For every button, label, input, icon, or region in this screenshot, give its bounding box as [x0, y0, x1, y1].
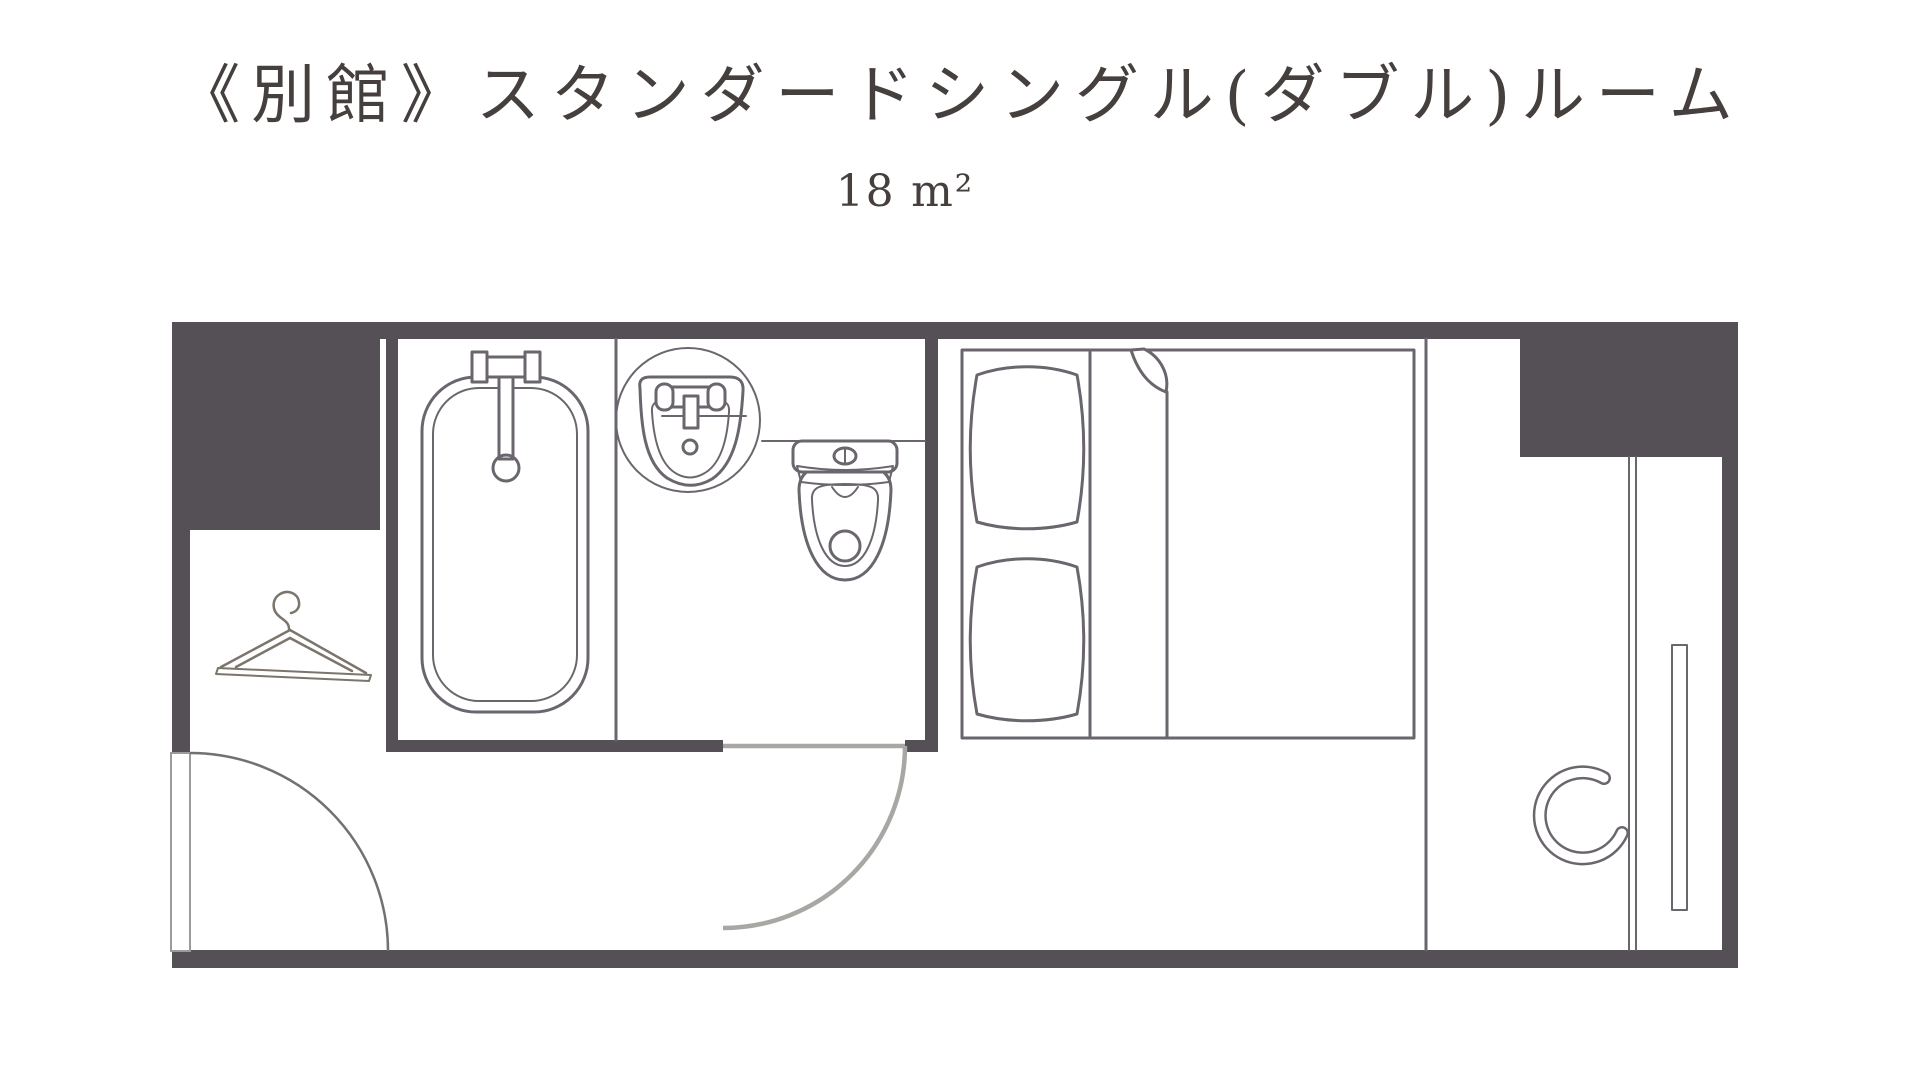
wall-top	[172, 322, 1738, 339]
hanger-icon	[216, 592, 371, 681]
bathroom-wall-left	[386, 339, 398, 751]
entrance-door-icon	[171, 753, 388, 951]
entrance-door-swing-arc	[190, 753, 388, 951]
bed-icon	[962, 349, 1414, 738]
bathtub-icon	[422, 352, 588, 712]
walls	[172, 322, 1738, 968]
closet-door-handle	[1672, 645, 1687, 910]
wall-bottom	[172, 950, 1738, 968]
pillow	[970, 367, 1084, 529]
wall-right	[1722, 457, 1738, 950]
sink-icon	[616, 348, 760, 492]
toilet-icon	[793, 441, 897, 580]
wall-block-top-right	[1520, 322, 1738, 457]
bathroom-door-icon	[723, 746, 905, 928]
bathroom-wall-right-foot	[905, 740, 938, 752]
bathroom-wall-right	[925, 339, 938, 740]
bathroom-door-swing-arc	[723, 746, 905, 928]
round-stool-icon	[1540, 772, 1622, 858]
floorplan-drawing	[0, 0, 1920, 1080]
entrance-door-leaf	[171, 753, 190, 951]
pillow	[970, 559, 1084, 721]
bathroom-wall-bottom	[386, 740, 723, 752]
closet-icon	[1629, 457, 1687, 950]
floorplan-page: 《別館》スタンダードシングル(ダブル)ルーム 18 m²	[0, 0, 1920, 1080]
wall-block-top-left	[172, 322, 380, 530]
wall-left	[172, 322, 190, 753]
